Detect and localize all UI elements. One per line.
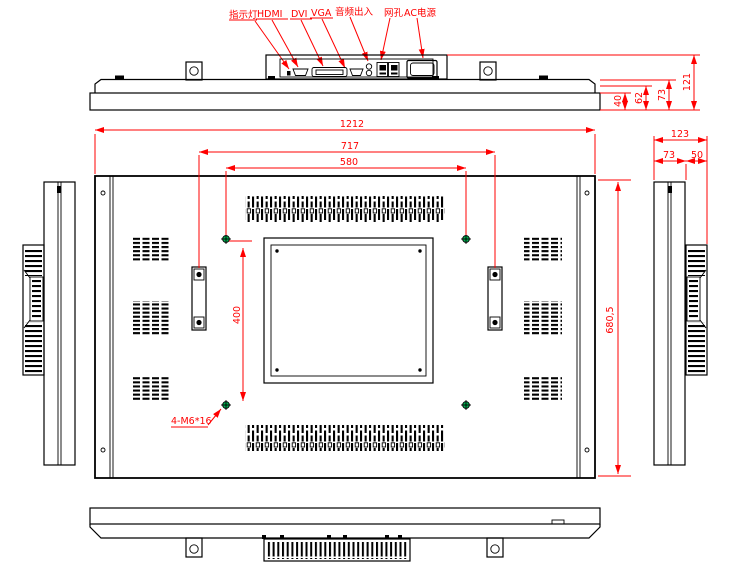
right-side-vent-box [686, 245, 707, 375]
mount-ear-left [186, 62, 202, 80]
technical-drawing: 指示灯 HDMI DVI VGA 音频出入 网孔 AC电源 [0, 0, 740, 572]
label-vga: VGA [311, 8, 332, 19]
dim-73: 73 [657, 89, 668, 101]
bottom-chassis-upper [90, 508, 600, 524]
leader-indicator [255, 21, 289, 69]
dim-717: 717 [341, 141, 359, 152]
vesa-hole-marker [221, 400, 231, 410]
label-audio: 音频出入 [335, 6, 374, 18]
lan-ports [377, 63, 399, 77]
right-side-view: 123 73 50 [654, 129, 707, 465]
dim-side-73: 73 [663, 150, 675, 161]
vga-port [350, 69, 363, 76]
indicator-led [287, 71, 291, 76]
mount-ear-right [480, 62, 496, 80]
dvi-port [312, 68, 347, 77]
dim-1212: 1212 [340, 119, 364, 130]
dim-side-50: 50 [691, 150, 703, 161]
leader-hdmi [272, 20, 298, 67]
ac-power-inlet [407, 61, 437, 79]
top-chassis-lower [90, 93, 600, 110]
label-lan: 网孔 [384, 8, 404, 19]
mount-ear-right-bottom [487, 538, 503, 557]
audio-jacks [366, 64, 371, 76]
handle-right [488, 267, 502, 330]
left-side-view [23, 182, 75, 465]
label-hdmi: HDMI [257, 9, 282, 20]
top-view-dimensions: 40 62 73 121 [447, 55, 700, 110]
vesa-hole-marker [461, 400, 471, 410]
label-power: AC电源 [404, 7, 436, 19]
mount-ear-left-bottom [186, 538, 202, 557]
hdmi-port [293, 69, 308, 76]
vesa-hole-marker [461, 234, 471, 244]
label-dvi: DVI [291, 9, 307, 20]
dim-123: 123 [671, 129, 689, 140]
drawing-canvas: 指示灯 HDMI DVI VGA 音频出入 网孔 AC电源 [0, 0, 740, 572]
right-side-panel [654, 182, 685, 465]
leader-vga [322, 19, 345, 68]
left-side-vent-box [23, 245, 44, 375]
left-side-panel [44, 182, 75, 465]
central-plate [264, 238, 433, 383]
rear-view-dimensions: 1212 717 580 400 4-M6*16 680,5 [95, 119, 631, 476]
side-view-dimensions: 123 73 50 [654, 129, 707, 244]
dim-62: 62 [634, 92, 645, 104]
leader-power [417, 18, 423, 58]
port-callouts: 指示灯 HDMI DVI VGA 音频出入 网孔 AC电源 [229, 6, 436, 69]
dim-580: 580 [340, 157, 358, 168]
label-indicator: 指示灯 [229, 9, 258, 21]
handle-left [192, 267, 206, 330]
dim-680-5: 680,5 [605, 306, 616, 333]
dim-40: 40 [613, 95, 624, 107]
vent-grid-top [245, 196, 445, 222]
vent-grid-bottom [245, 425, 445, 451]
dim-121: 121 [682, 73, 693, 91]
rear-view: 1212 717 580 400 4-M6*16 680,5 [95, 119, 631, 478]
leader-lan [381, 18, 390, 60]
top-view: 40 62 73 121 [90, 55, 700, 110]
bottom-view [90, 508, 600, 561]
top-chassis-upper [95, 80, 595, 94]
vesa-hole-marker [221, 234, 231, 244]
dim-screw-note: 4-M6*16 [171, 416, 212, 427]
dim-400: 400 [232, 306, 243, 324]
bottom-vent-box [262, 535, 410, 561]
